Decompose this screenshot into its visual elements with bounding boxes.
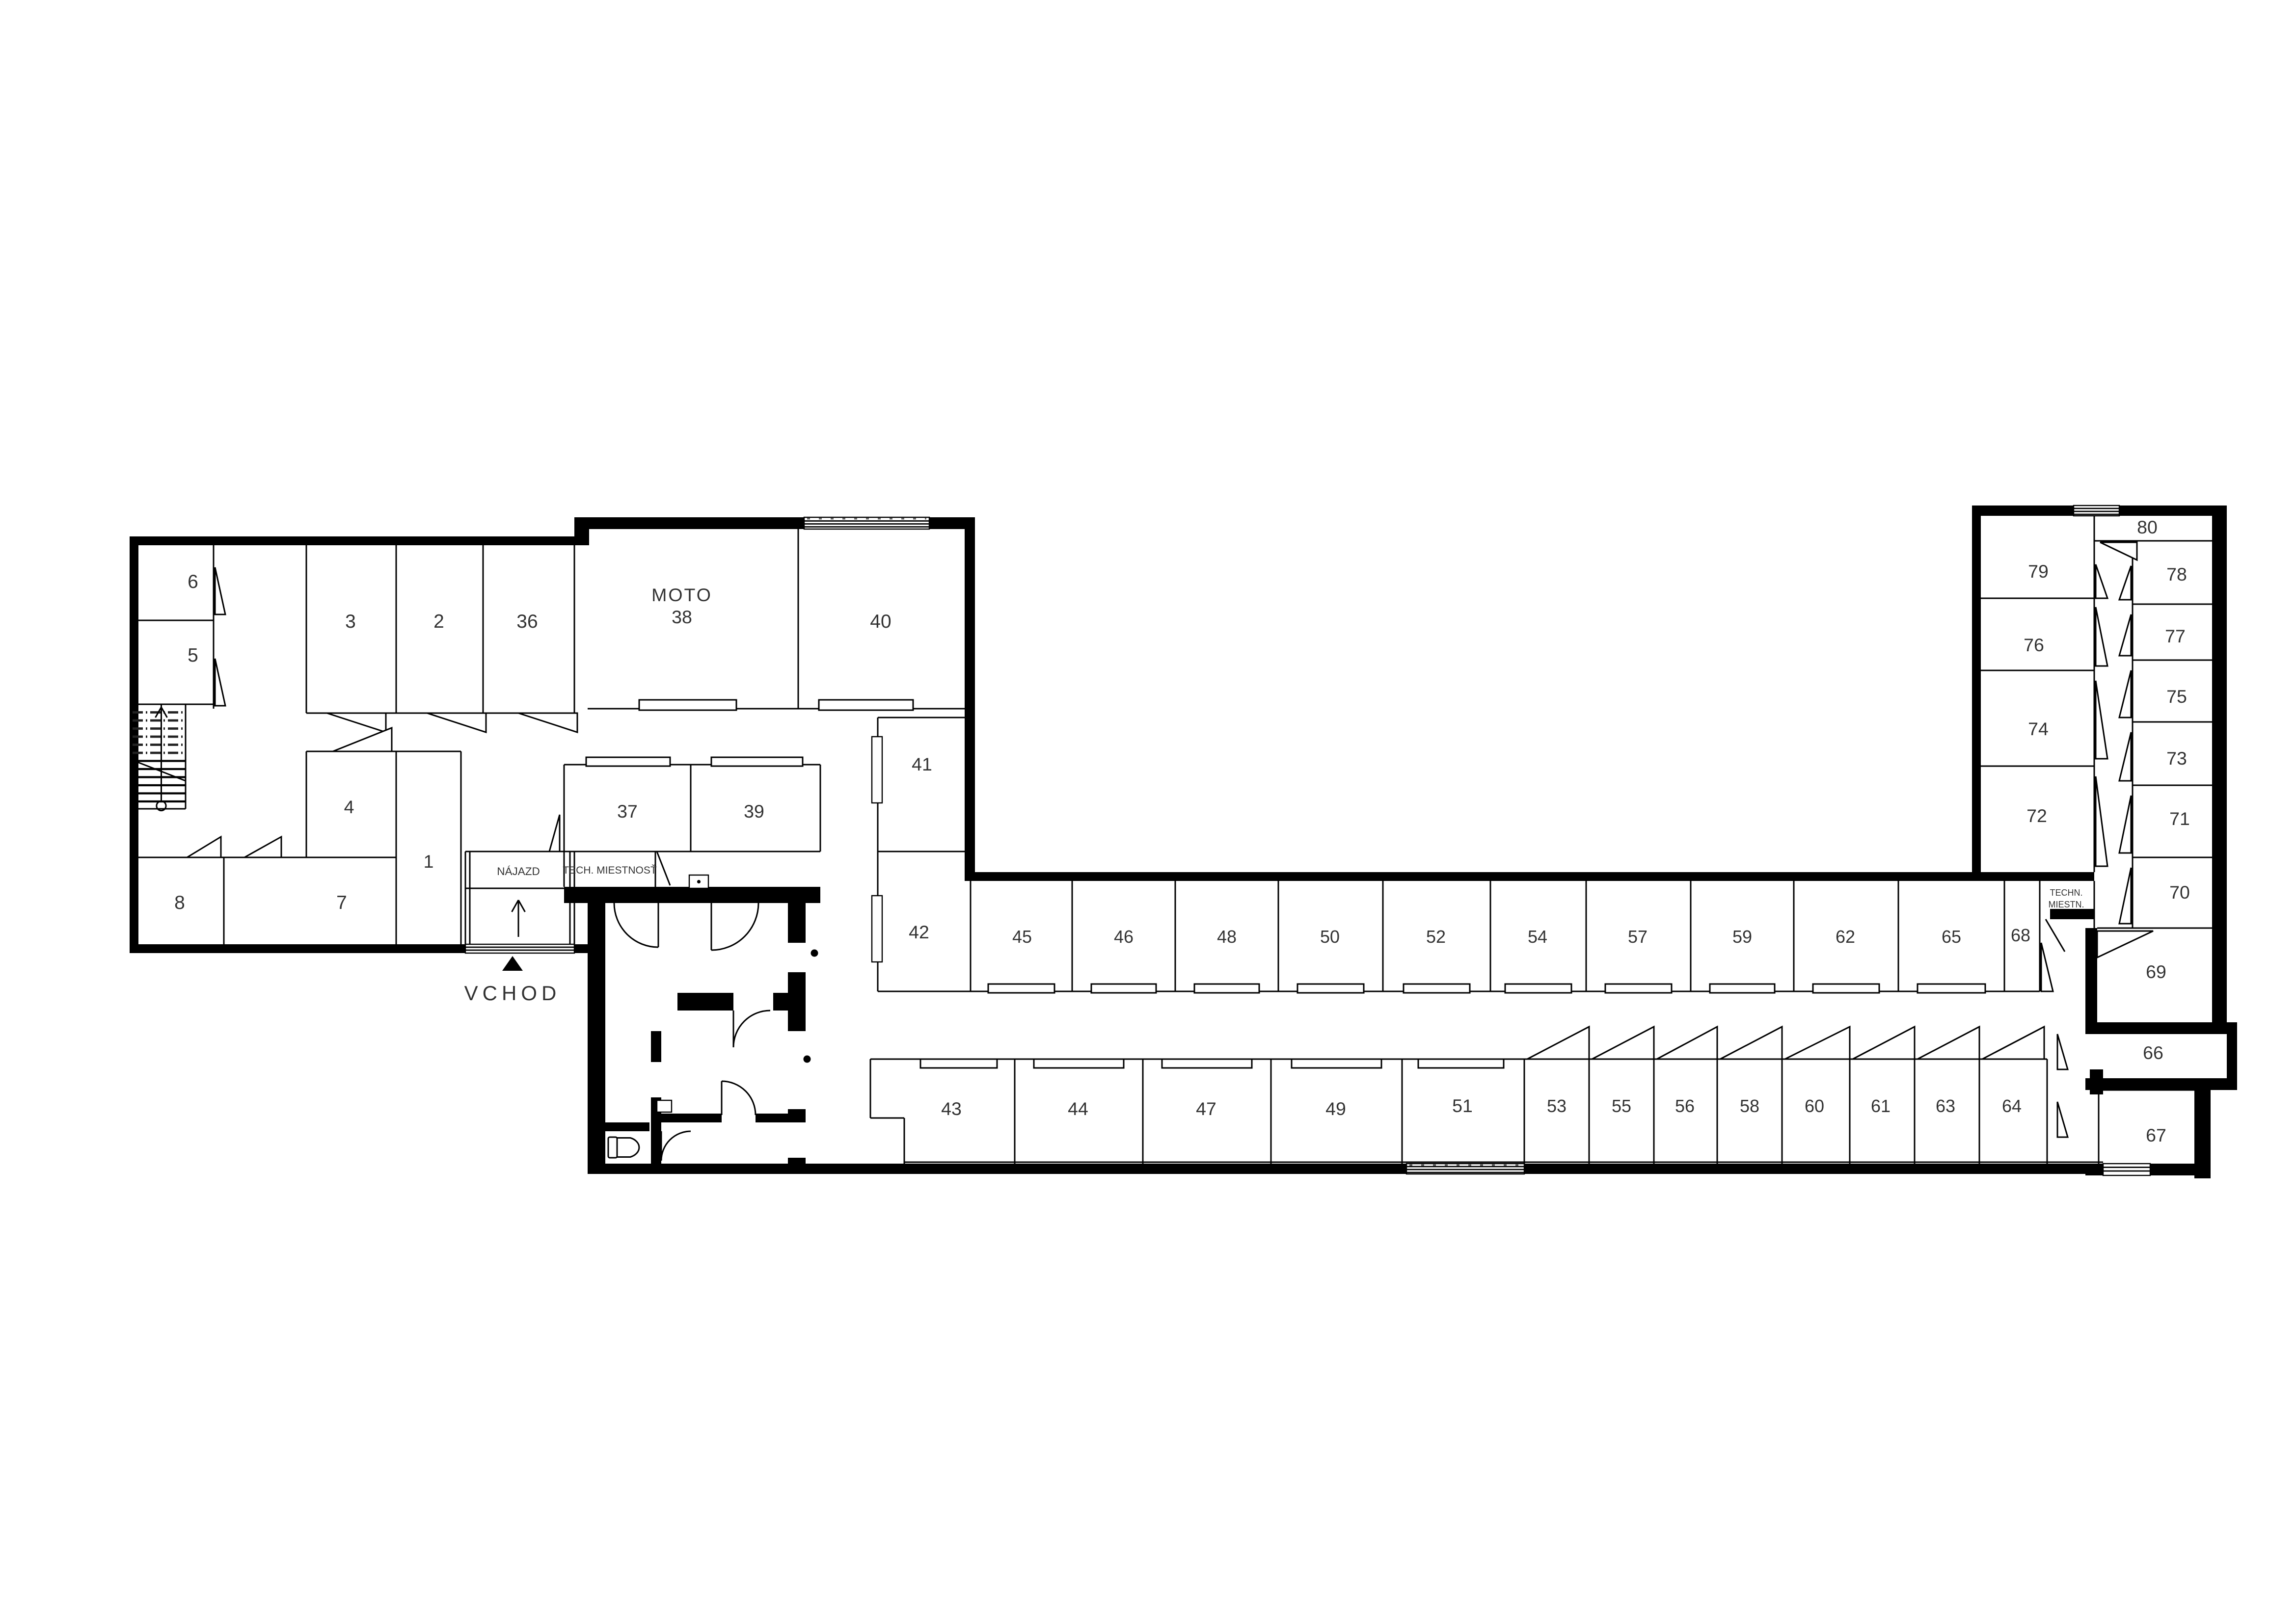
label-room-39: 39 [744,801,764,822]
label-room-49: 49 [1325,1098,1346,1119]
najazd-arrow-icon [512,900,525,937]
label-room-72: 72 [2026,805,2047,826]
toilet-icon [608,1137,639,1158]
label-vchod: VCHOD [464,982,561,1005]
label-room-60: 60 [1805,1096,1824,1116]
label-room-5: 5 [188,645,198,666]
label-room-68: 68 [2011,925,2030,945]
label-room-3: 3 [345,611,356,632]
label-tech-miestnost: TECH. MIESTNOSŤ [563,865,657,876]
label-room-63: 63 [1936,1096,1955,1116]
label-room-70: 70 [2169,882,2190,903]
label-room-51: 51 [1452,1095,1473,1116]
label-room-43: 43 [941,1098,962,1119]
label-room-6: 6 [188,571,198,592]
label-room-7: 7 [336,892,347,913]
label-room-37: 37 [617,801,638,822]
label-room-61: 61 [1871,1096,1891,1116]
label-room-57: 57 [1628,927,1648,947]
label-room-79: 79 [2028,561,2049,582]
label-room-2: 2 [433,611,444,632]
label-room-78: 78 [2166,564,2187,585]
door-hinge-icon [811,949,818,957]
label-room-71: 71 [2169,808,2190,829]
label-room-41: 41 [912,754,932,774]
label-room-52: 52 [1426,927,1446,947]
label-miestn: MIESTN. [2048,900,2084,909]
switch-box-icon [689,875,708,888]
label-room-65: 65 [1942,927,1961,947]
label-room-64: 64 [2002,1096,2022,1116]
window-top-left [804,517,929,529]
label-room-56: 56 [1675,1096,1695,1116]
najazd-threshold [465,944,574,953]
duct-box [657,1100,672,1112]
label-room-36: 36 [516,611,538,632]
label-room-66: 66 [2143,1042,2163,1063]
entrance-markers [502,900,525,971]
label-room-4: 4 [344,797,354,817]
stairs [133,704,186,811]
label-najazd: NÁJAZD [497,865,540,878]
floor-plan-page: 653236MOTO384041423739TECH. MIESTNOSŤ418… [0,0,2296,1623]
label-room-1: 1 [424,851,434,872]
label-room-62: 62 [1836,927,1855,947]
label-room-38: 38 [672,607,692,627]
label-room-77: 77 [2165,626,2186,646]
label-room-75: 75 [2166,686,2187,707]
label-room-53: 53 [1547,1096,1567,1116]
label-room-54: 54 [1528,927,1547,947]
window-top-right [2074,506,2119,516]
label-room-67: 67 [2146,1125,2166,1145]
label-room-58: 58 [1740,1096,1759,1116]
label-room-40: 40 [870,611,891,632]
label-room-55: 55 [1612,1096,1631,1116]
label-room-80: 80 [2137,517,2158,537]
label-room-46: 46 [1114,927,1134,947]
label-room-74: 74 [2028,718,2049,739]
label-room-44: 44 [1068,1098,1088,1119]
label-room-73: 73 [2166,748,2187,769]
label-room-45: 45 [1012,927,1032,947]
label-room-59: 59 [1732,927,1752,947]
label-room-42: 42 [909,922,929,942]
label-room-8: 8 [174,892,185,913]
label-room-47: 47 [1196,1098,1216,1119]
floor-plan-svg: 653236MOTO384041423739TECH. MIESTNOSŤ418… [0,0,2296,1623]
walls [130,506,2237,1178]
door-hinge-icon [804,1055,811,1063]
window-bottom-51 [1406,1164,1524,1174]
window-bottom-67 [2103,1164,2150,1175]
label-techn: TECHN. [2050,888,2083,898]
label-room-38-moto: MOTO [651,585,712,605]
label-room-76: 76 [2024,635,2044,655]
label-room-50: 50 [1320,927,1340,947]
label-room-69: 69 [2146,961,2166,982]
window-openings [465,506,2150,1175]
vchod-arrow-icon [502,956,523,971]
label-room-48: 48 [1217,927,1237,947]
